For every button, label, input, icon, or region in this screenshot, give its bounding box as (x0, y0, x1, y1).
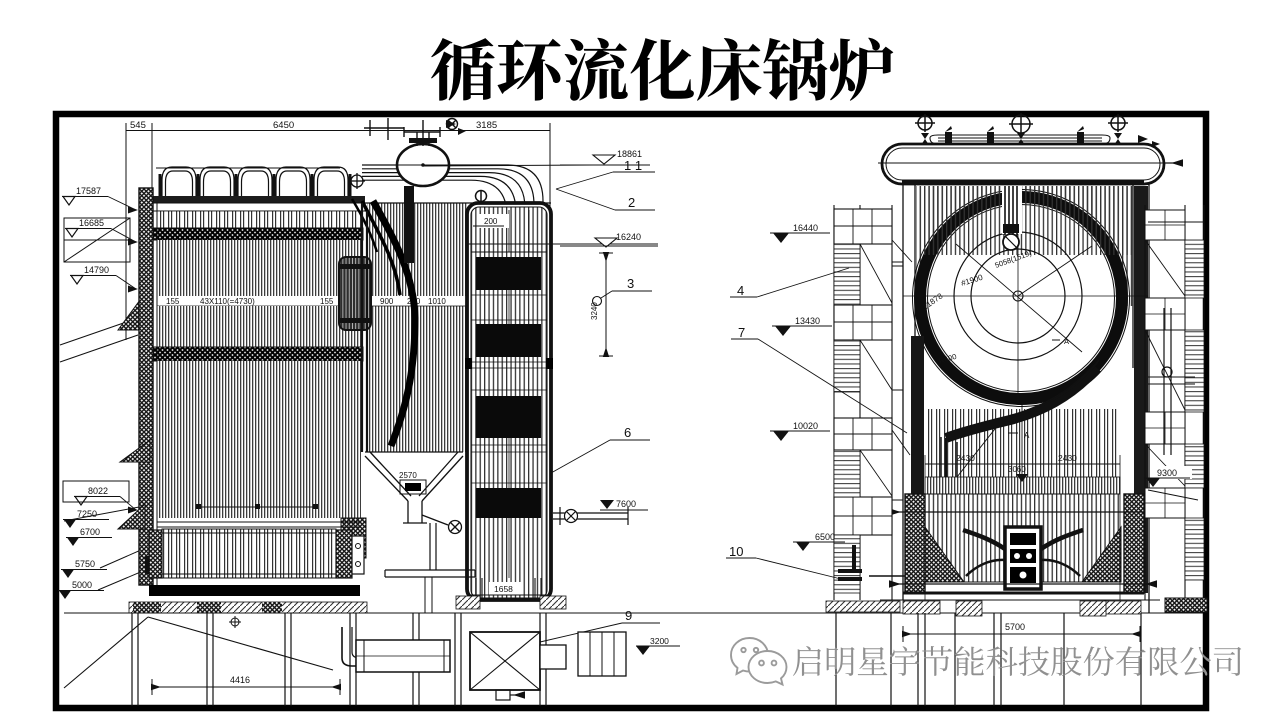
svg-text:1010: 1010 (428, 297, 446, 306)
svg-text:900: 900 (380, 297, 394, 306)
svg-text:10: 10 (729, 544, 743, 559)
svg-text:6450: 6450 (273, 120, 294, 131)
svg-text:7600: 7600 (616, 499, 636, 509)
svg-text:9: 9 (625, 608, 632, 623)
svg-text:6: 6 (624, 425, 631, 440)
svg-text:2570: 2570 (399, 471, 417, 480)
svg-text:A: A (1064, 337, 1069, 346)
svg-text:3060: 3060 (1008, 465, 1026, 474)
svg-text:3185: 3185 (476, 120, 497, 131)
svg-text:155: 155 (166, 297, 180, 306)
svg-text:16240: 16240 (616, 232, 641, 242)
svg-text:16685: 16685 (79, 218, 104, 228)
svg-text:4: 4 (737, 283, 744, 298)
svg-text:545: 545 (130, 120, 146, 131)
svg-text:1 1: 1 1 (624, 158, 642, 173)
svg-text:17587: 17587 (76, 186, 101, 196)
svg-text:7: 7 (738, 325, 745, 340)
svg-text:5000: 5000 (72, 580, 92, 590)
svg-text:43X110(=4730): 43X110(=4730) (200, 297, 255, 306)
svg-text:5750: 5750 (75, 559, 95, 569)
svg-text:1658: 1658 (494, 584, 513, 594)
svg-text:200: 200 (484, 217, 498, 226)
svg-text:5700: 5700 (1005, 622, 1025, 632)
svg-text:13430: 13430 (795, 316, 820, 326)
svg-text:2: 2 (628, 195, 635, 210)
svg-text:155: 155 (320, 297, 334, 306)
svg-text:8022: 8022 (88, 486, 108, 496)
svg-text:3: 3 (627, 276, 634, 291)
svg-text:6700: 6700 (80, 527, 100, 537)
svg-text:10020: 10020 (793, 421, 818, 431)
svg-text:4416: 4416 (230, 675, 250, 685)
svg-text:7250: 7250 (77, 509, 97, 519)
svg-text:6500: 6500 (815, 532, 835, 542)
svg-text:16440: 16440 (793, 223, 818, 233)
svg-text:3200: 3200 (650, 636, 669, 646)
svg-text:9300: 9300 (1157, 468, 1177, 478)
svg-text:2430: 2430 (956, 453, 975, 463)
svg-text:A: A (1024, 431, 1030, 440)
svg-text:2430: 2430 (1058, 453, 1077, 463)
svg-text:14790: 14790 (84, 265, 109, 275)
